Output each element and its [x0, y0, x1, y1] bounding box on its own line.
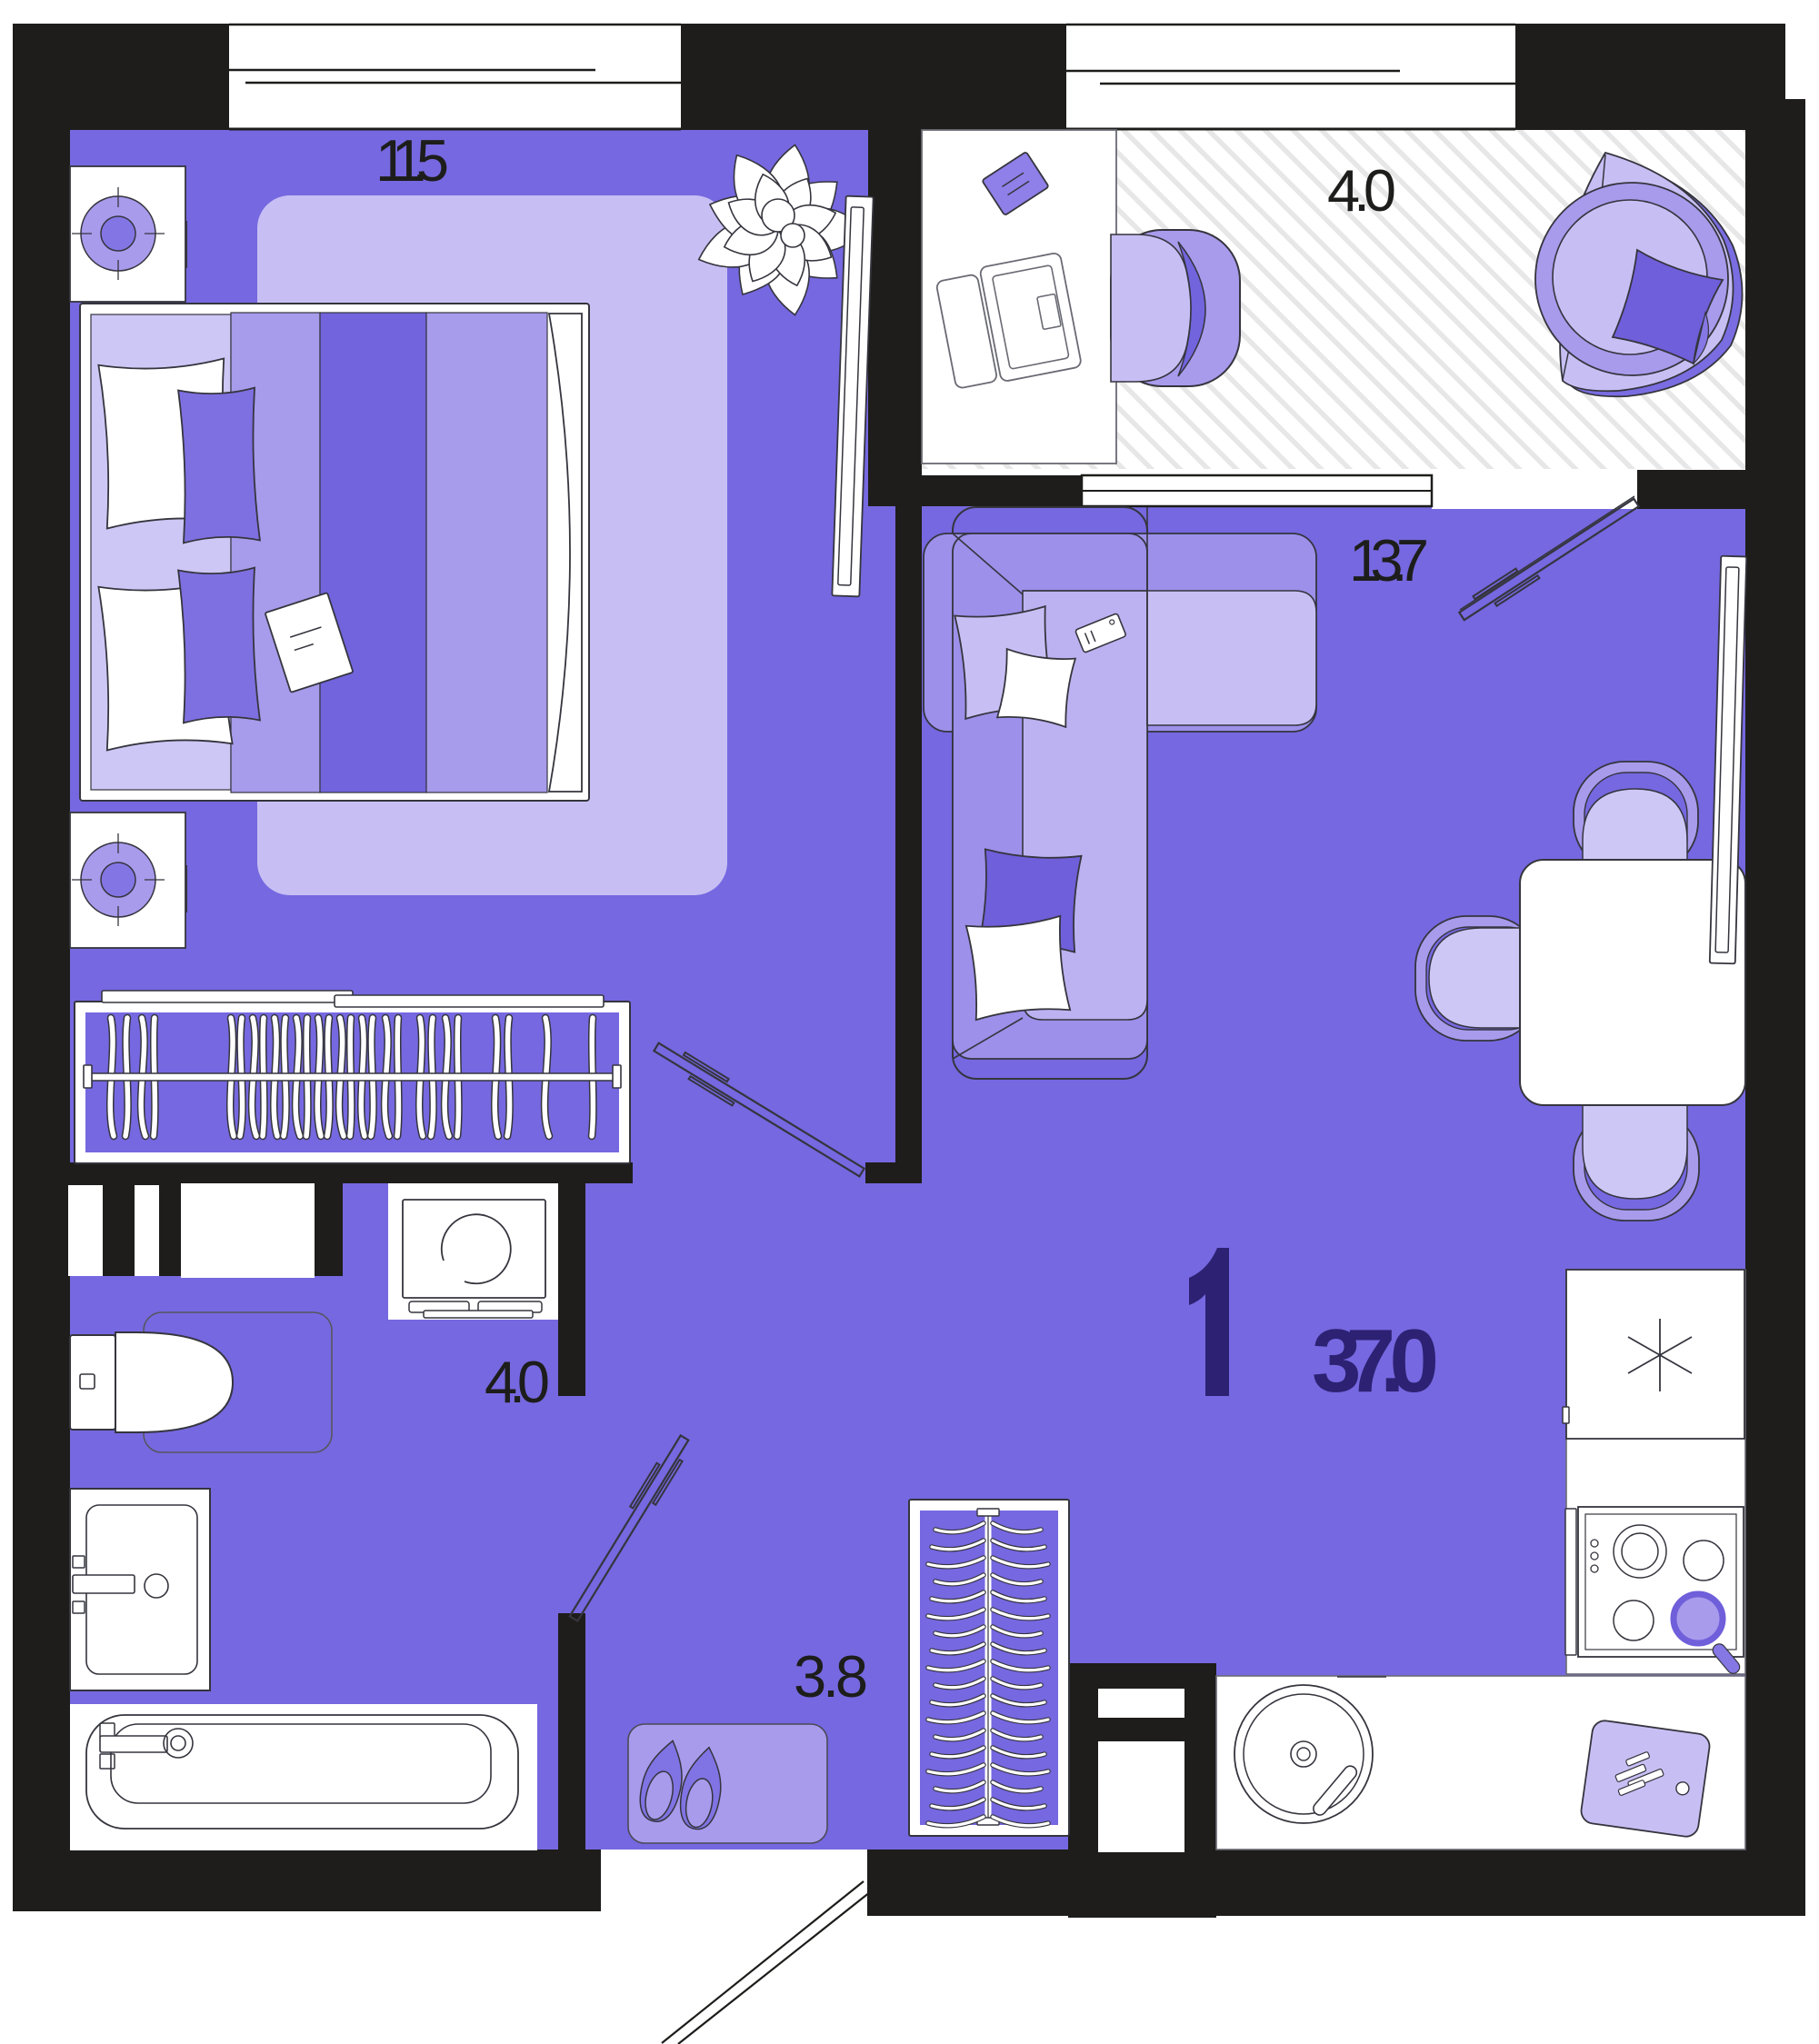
svg-text:37.0: 37.0: [1312, 1311, 1439, 1411]
svg-text:13.7: 13.7: [1349, 527, 1429, 593]
svg-text:4.0: 4.0: [1327, 157, 1396, 224]
svg-text:3.8: 3.8: [794, 1643, 868, 1710]
svg-text:11.5: 11.5: [375, 127, 449, 194]
svg-text:4.0: 4.0: [485, 1349, 550, 1415]
